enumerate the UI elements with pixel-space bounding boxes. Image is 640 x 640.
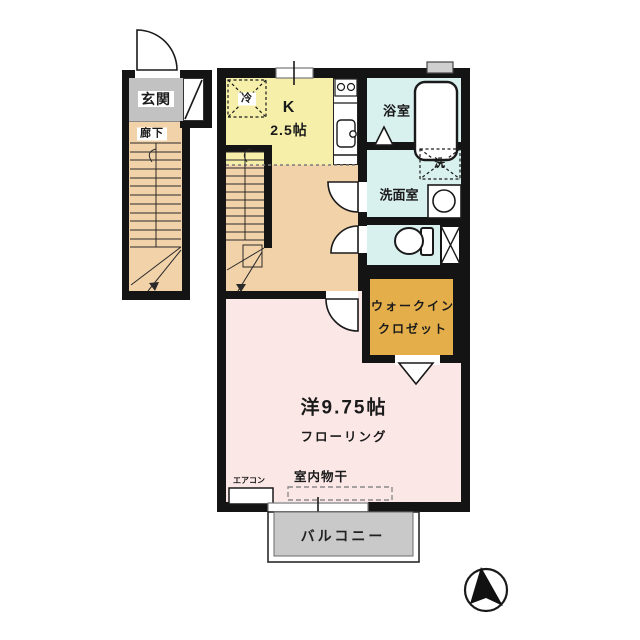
toilet-icon: [395, 228, 433, 255]
closet-label-2: クロゼット: [378, 323, 448, 335]
western-room-door-arc: [326, 299, 358, 331]
flooring-label: フローリング: [300, 431, 387, 444]
bathroom-door-icon: [375, 127, 393, 145]
closet-label-1: ウォークイン: [371, 300, 455, 312]
stove-icon: [334, 79, 357, 103]
bathroom-window-icon: [427, 62, 453, 73]
bathtub-icon: [415, 82, 457, 160]
pipe-space-x-icon: [441, 226, 460, 264]
shoe-cabinet-line: [185, 80, 202, 119]
floor-plan: 玄関 廊下 冷 K 2.5帖 浴室 洗 洗面室 ウォークイン クロゼット 洋9.…: [0, 0, 640, 640]
stairs-main-icon: [226, 149, 264, 292]
washbasin-icon: [428, 185, 461, 218]
kitchen-size-label: 2.5帖: [270, 123, 307, 137]
indoor-laundry-rail: [288, 487, 392, 500]
balcony-label: バルコニー: [301, 529, 386, 543]
closet-door-icon: [399, 363, 433, 384]
corridor-label: 廊下: [137, 128, 167, 141]
aircon-label: エアコン: [233, 477, 265, 485]
entrance-door-arc: [137, 30, 177, 70]
washroom-door-arc: [328, 182, 358, 212]
washroom-label: 洗面室: [379, 189, 418, 202]
north-compass-icon: [465, 567, 507, 611]
entrance-label: 玄関: [138, 91, 174, 107]
indoor-laundry-label: 室内物干: [294, 471, 348, 484]
kitchen-sink-icon: [334, 120, 357, 155]
aircon-box-icon: [229, 488, 273, 504]
western-room-label: 洋9.75帖: [301, 399, 388, 418]
fridge-label: 冷: [238, 93, 256, 106]
kitchen-type-label: K: [283, 100, 296, 116]
bathroom-label: 浴室: [383, 105, 411, 118]
stairs-annex-icon: [130, 143, 181, 291]
toilet-door-arc: [331, 226, 358, 253]
washer-label: 洗: [431, 158, 449, 171]
kitchen-window-icon: [276, 61, 313, 85]
